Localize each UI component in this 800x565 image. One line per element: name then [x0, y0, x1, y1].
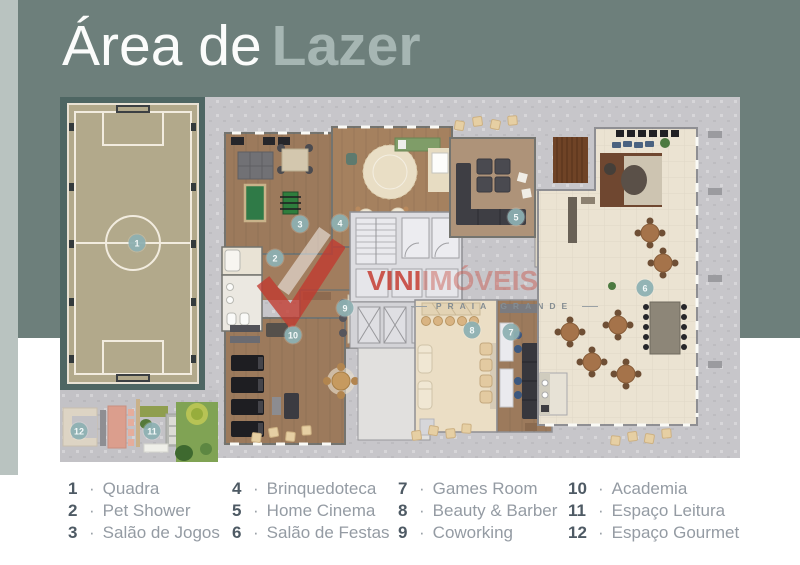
legend-dot: ·	[253, 522, 259, 544]
room-salao-de-jogos	[225, 133, 332, 254]
legend-column-3: 7·Games Room 8·Beauty & Barber 9·Coworki…	[398, 478, 557, 544]
legend-item: 8·Beauty & Barber	[398, 500, 557, 522]
plan-marker-salao-jogos: 3	[292, 216, 309, 233]
legend-label: Salão de Festas	[267, 522, 390, 544]
legend-number: 11	[568, 500, 592, 522]
foosball-table	[280, 192, 301, 214]
legend-label: Beauty & Barber	[433, 500, 558, 522]
plan-marker-beauty-barber: 8	[464, 322, 481, 339]
legend-item: 9·Coworking	[398, 522, 557, 544]
legend-number: 10	[568, 478, 592, 500]
plan-marker-pet-shower: 2	[267, 250, 284, 267]
page: Área deLazer	[0, 0, 800, 565]
sofa-set	[238, 152, 273, 179]
left-accent-strip	[0, 0, 18, 475]
legend-label: Coworking	[433, 522, 513, 544]
reception-counter	[568, 197, 577, 243]
legend-item: 6·Salão de Festas	[232, 522, 390, 544]
legend-number: 6	[232, 522, 247, 544]
legend-label: Espaço Gourmet	[612, 522, 740, 544]
legend-dot: ·	[419, 478, 425, 500]
legend-number: 1	[68, 478, 83, 500]
room-pet-shower	[222, 247, 262, 275]
legend-number: 2	[68, 500, 83, 522]
plan-marker-salao-festas: 6	[637, 280, 654, 297]
plan-marker-quadra: 1	[129, 235, 146, 252]
legend-dot: ·	[89, 500, 95, 522]
legend-number: 12	[568, 522, 592, 544]
legend-dot: ·	[253, 478, 259, 500]
legend-dot: ·	[419, 522, 425, 544]
plan-marker-espaco-gourmet: 12	[71, 423, 88, 440]
round-rug	[363, 145, 417, 199]
legend-item: 2·Pet Shower	[68, 500, 220, 522]
legend-number: 9	[398, 522, 413, 544]
legend-label: Quadra	[103, 478, 160, 500]
title-light: Área de	[62, 14, 262, 78]
restrooms	[222, 275, 262, 331]
building	[222, 127, 697, 444]
legend-item: 4·Brinquedoteca	[232, 478, 390, 500]
legend-dot: ·	[89, 478, 95, 500]
legend-column-2: 4·Brinquedoteca 5·Home Cinema 6·Salão de…	[232, 478, 390, 544]
legend-item: 12·Espaço Gourmet	[568, 522, 739, 544]
long-table	[643, 302, 687, 354]
legend-dot: ·	[598, 522, 604, 544]
legend-item: 3·Salão de Jogos	[68, 522, 220, 544]
legend-number: 8	[398, 500, 413, 522]
plan-marker-espaco-leitura: 11	[144, 423, 161, 440]
legend-dot: ·	[598, 478, 604, 500]
legend-label: Games Room	[433, 478, 538, 500]
plan-marker-brinquedoteca: 4	[332, 215, 349, 232]
card-table	[277, 144, 313, 174]
pool-table	[245, 185, 265, 221]
legend-number: 7	[398, 478, 413, 500]
floor-plan-drawing	[60, 97, 740, 462]
plan-marker-coworking: 9	[337, 300, 354, 317]
legend-dot: ·	[89, 522, 95, 544]
legend-item: 1·Quadra	[68, 478, 220, 500]
legend-label: Home Cinema	[267, 500, 376, 522]
legend-label: Pet Shower	[103, 500, 191, 522]
legend-label: Academia	[612, 478, 688, 500]
legend-label: Brinquedoteca	[267, 478, 377, 500]
legend: 1·Quadra 2·Pet Shower 3·Salão de Jogos 4…	[68, 478, 768, 553]
legend-item: 10·Academia	[568, 478, 739, 500]
legend-label: Salão de Jogos	[103, 522, 220, 544]
room-beauty-barber	[415, 300, 497, 435]
kitchen	[540, 373, 567, 415]
plan-marker-home-cinema: 5	[508, 209, 525, 226]
floor-plan: VINIIMÓVEIS PRAIA GRANDE 1 2 3 4 5 6 7 8…	[60, 97, 740, 462]
legend-column-1: 1·Quadra 2·Pet Shower 3·Salão de Jogos	[68, 478, 220, 544]
stair-core	[350, 212, 462, 302]
gourmet-table	[108, 406, 126, 448]
legend-number: 4	[232, 478, 247, 500]
legend-item: 7·Games Room	[398, 478, 557, 500]
legend-number: 5	[232, 500, 247, 522]
plan-marker-academia: 10	[285, 327, 302, 344]
page-title: Área deLazer	[62, 14, 421, 78]
wood-deck	[553, 137, 588, 183]
legend-item: 11·Espaço Leitura	[568, 500, 739, 522]
legend-dot: ·	[253, 500, 259, 522]
legend-label: Espaço Leitura	[612, 500, 725, 522]
legend-item: 5·Home Cinema	[232, 500, 390, 522]
legend-dot: ·	[598, 500, 604, 522]
title-bold: Lazer	[272, 14, 421, 78]
plan-marker-games-room: 7	[503, 324, 520, 341]
legend-number: 3	[68, 522, 83, 544]
legend-column-4: 10·Academia 11·Espaço Leitura 12·Espaço …	[568, 478, 739, 544]
legend-dot: ·	[419, 500, 425, 522]
